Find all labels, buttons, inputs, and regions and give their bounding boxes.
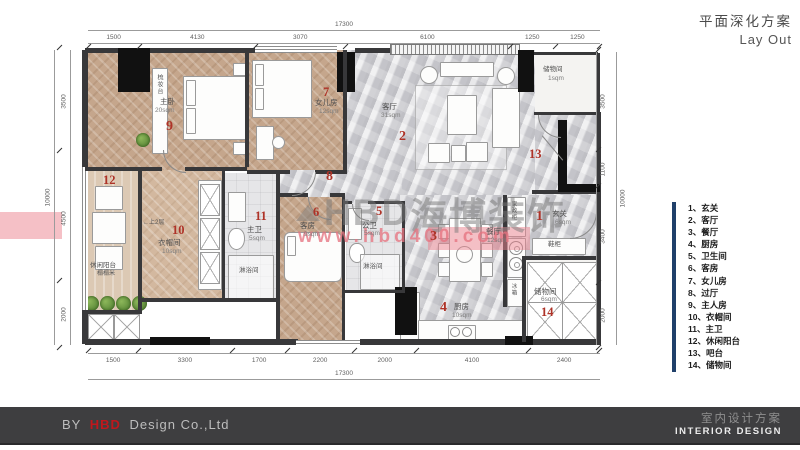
louver-window <box>390 44 520 55</box>
dim-value: 2000 <box>377 357 391 364</box>
dim-bottom-segments: 1500330017002200200041002400 <box>88 353 600 366</box>
label-master: 主卧 <box>160 98 175 106</box>
shaft <box>395 287 417 335</box>
ac-unit <box>114 314 140 340</box>
ac-unit <box>88 314 114 340</box>
dim-segment: 2400 <box>528 354 600 366</box>
dim-left-segments: 350045002000 <box>58 50 71 345</box>
annotation-shower-2: 淋浴间 <box>363 264 383 271</box>
footer-program: 室内设计方案 INTERIOR DESIGN <box>675 410 782 437</box>
wall <box>343 50 347 170</box>
burner-icon <box>462 327 472 337</box>
annotation-dressing-table: 梳妆台 <box>156 74 162 95</box>
dim-value: 1700 <box>252 357 266 364</box>
dim-value: 4100 <box>465 357 479 364</box>
plant <box>116 296 131 311</box>
dim-segment: 4130 <box>139 31 255 43</box>
footer-bar: BY HBD Design Co.,Ltd 室内设计方案 INTERIOR DE… <box>0 407 800 445</box>
dim-value: 6100 <box>420 34 434 41</box>
toilet <box>228 228 245 250</box>
num-storage: 14 <box>541 306 554 319</box>
dim-value: 2400 <box>557 357 571 364</box>
dim-value: 1500 <box>106 357 120 364</box>
label-guest: 客房 <box>300 222 315 230</box>
dim-segment: 3070 <box>255 31 345 43</box>
dining-chair <box>438 262 450 277</box>
dim-segment: 1500 <box>88 354 138 366</box>
shelf-unit <box>562 262 598 303</box>
area-balcstore: 1sqm <box>548 76 564 83</box>
label-kitchen: 厨房 <box>454 303 469 311</box>
floor-storage-balcony <box>535 55 597 113</box>
sofa <box>492 88 520 148</box>
area-kitchen: 10sqm <box>452 313 472 320</box>
master-bed-pillow <box>186 108 196 134</box>
wall <box>247 170 290 174</box>
label-girl: 女儿房 <box>315 99 338 107</box>
num-dining: 3 <box>430 230 437 244</box>
dim-value: 2000 <box>600 308 607 322</box>
dim-value: 3070 <box>293 34 307 41</box>
dim-value: 1500 <box>106 34 120 41</box>
wall <box>185 167 247 171</box>
dim-value: 2200 <box>313 357 327 364</box>
dryer-icon <box>509 257 523 271</box>
label-balcony: 休闲阳台 <box>90 262 116 269</box>
guest-bed-pillow <box>287 236 296 256</box>
window <box>296 340 362 345</box>
dim-value: 3400 <box>600 229 607 243</box>
dim-segment: 3400 <box>597 188 609 285</box>
dim-value: 17300 <box>335 21 353 28</box>
label-storage: 储物间 <box>534 288 557 296</box>
dim-left-total: 10000 <box>42 50 55 345</box>
num-kitchen: 4 <box>440 301 447 315</box>
lounge-chair <box>497 67 515 85</box>
shower-stall <box>360 254 400 290</box>
annotation-stairs: ←上2层 <box>143 220 164 226</box>
wardrobe-shelf <box>200 218 220 250</box>
dim-segment: 4500 <box>58 153 70 283</box>
wall <box>222 171 225 301</box>
label-balcstore: 储物间 <box>543 66 563 73</box>
stool <box>451 145 466 162</box>
plant <box>100 296 115 311</box>
label-dining: 餐厅 <box>486 228 501 236</box>
dim-value: 1250 <box>570 34 584 41</box>
wall <box>142 167 162 171</box>
dim-value: 1250 <box>525 34 539 41</box>
column <box>118 48 150 92</box>
wardrobe-shelf <box>200 184 220 216</box>
lounge-chair <box>420 66 438 84</box>
wall <box>150 48 255 53</box>
girl-bed-pillow <box>255 88 264 110</box>
dim-value: 17300 <box>335 370 353 377</box>
num-mbath: 11 <box>255 210 267 223</box>
annotation-fridge: 冰箱 <box>510 283 516 296</box>
area-guest: 9sqm <box>304 232 320 239</box>
dim-right-segments: 3500110034002000 <box>596 52 609 345</box>
dim-value: 3500 <box>61 94 68 108</box>
window <box>255 46 337 53</box>
dim-segment: 1100 <box>597 152 609 188</box>
shelf-unit <box>562 302 598 342</box>
footer-program-cn: 室内设计方案 <box>675 410 782 426</box>
wall <box>344 290 405 293</box>
balcony-table <box>92 212 126 244</box>
floor-plan: HBD海博装饰 www.hbd400.com 主卧 20sqm 9 7 女儿房 … <box>0 0 800 450</box>
dim-segment: 3500 <box>58 50 70 153</box>
dim-value: 10000 <box>620 189 627 207</box>
dim-top-total: 17300 <box>88 18 600 31</box>
wall <box>85 310 142 314</box>
dim-segment: 2000 <box>354 354 416 366</box>
footer-brand: HBD <box>90 417 121 432</box>
num-girl: 7 <box>323 86 329 99</box>
area-closet: 10sqm <box>162 249 182 256</box>
num-foyer: 1 <box>536 210 543 224</box>
dim-segment: 3300 <box>138 354 231 366</box>
shower-stall <box>228 255 274 299</box>
dim-segment: 1500 <box>88 31 139 43</box>
note-balcony: 榻榻米 <box>97 271 115 277</box>
burner-icon <box>450 327 460 337</box>
desk-chair <box>272 136 285 149</box>
dim-segment: 4100 <box>416 354 528 366</box>
bath-sink <box>228 192 246 222</box>
area-storage: 6sqm <box>541 297 557 304</box>
num-master: 9 <box>166 120 173 134</box>
num-hall: 8 <box>326 170 333 184</box>
dim-bottom-total: 17300 <box>88 367 600 380</box>
column <box>150 337 210 345</box>
dim-segment: 3500 <box>597 52 609 152</box>
dim-segment: 1700 <box>232 354 287 366</box>
dim-right-total: 10000 <box>616 52 629 345</box>
dim-value: 1100 <box>600 163 607 177</box>
dim-value: 3300 <box>178 357 192 364</box>
area-living: 31sqm <box>381 113 401 120</box>
num-balcony: 12 <box>103 174 116 187</box>
num-closet: 10 <box>172 224 185 237</box>
area-girl: 12sqm <box>319 109 339 116</box>
stool <box>428 143 450 163</box>
annotation-utility-cabinet: 家政柜 <box>510 201 516 221</box>
area-pubbath: 5sqm <box>364 231 380 238</box>
wall <box>138 298 278 302</box>
wall <box>360 339 601 345</box>
footer-credit: BY HBD Design Co.,Ltd <box>62 407 230 443</box>
tv-cabinet <box>440 62 494 77</box>
label-mbath: 主卫 <box>247 226 262 234</box>
dim-segment: 2000 <box>58 283 70 345</box>
balcony-seat <box>95 186 123 210</box>
column <box>505 336 533 345</box>
dim-value: 10000 <box>45 188 52 206</box>
stool <box>466 142 488 162</box>
wall <box>522 260 526 342</box>
wall <box>245 50 249 167</box>
slide: 平面深化方案 Lay Out 1、玄关 2、客厅 3、餐厅 4、厨房 5、卫生间… <box>0 0 800 450</box>
num-pubbath: 5 <box>376 205 382 218</box>
dim-segment: 2200 <box>287 354 354 366</box>
label-foyer: 玄关 <box>552 210 567 218</box>
girl-bed-pillow <box>255 64 264 86</box>
area-dining: 12sqm <box>487 238 507 245</box>
dim-segment: 1250 <box>510 31 555 43</box>
label-pubbath: 公卫 <box>362 222 377 230</box>
wall <box>534 52 598 55</box>
dim-segment: 1250 <box>555 31 600 43</box>
area-mbath: 5sqm <box>249 236 265 243</box>
coffee-table <box>447 95 477 135</box>
plant <box>136 133 150 147</box>
annotation-shoe-cabinet: 鞋柜 <box>548 242 561 249</box>
annotation-shower-1: 淋浴间 <box>239 268 259 275</box>
wall <box>522 256 600 260</box>
dim-segment: 2000 <box>597 285 609 345</box>
watermark-url: www.hbd400.com <box>298 226 514 248</box>
column <box>518 50 534 92</box>
footer-program-en: INTERIOR DESIGN <box>675 426 782 437</box>
footer-company: Design Co.,Ltd <box>130 417 230 432</box>
wall <box>138 167 142 312</box>
area-foyer: 6sqm <box>555 220 571 227</box>
label-closet: 衣帽间 <box>158 239 181 247</box>
wardrobe-shelf <box>200 252 220 284</box>
dim-value: 3500 <box>600 95 607 109</box>
dining-chair <box>481 262 493 277</box>
dim-value: 4500 <box>61 211 68 225</box>
wall <box>85 167 142 171</box>
wall <box>82 50 88 167</box>
window <box>82 167 88 310</box>
num-bar: 13 <box>529 148 542 161</box>
footer-by: BY <box>62 417 81 432</box>
wall <box>355 48 390 53</box>
dim-segment: 6100 <box>345 31 509 43</box>
dim-top-segments: 150041303070610012501250 <box>88 31 600 44</box>
area-master: 20sqm <box>155 108 175 115</box>
num-guest: 6 <box>313 206 319 219</box>
num-living: 2 <box>399 130 406 144</box>
wall <box>85 48 118 53</box>
master-bed-pillow <box>186 80 196 106</box>
dim-value: 4130 <box>190 34 204 41</box>
dim-value: 2000 <box>61 307 68 321</box>
label-living: 客厅 <box>382 103 397 111</box>
